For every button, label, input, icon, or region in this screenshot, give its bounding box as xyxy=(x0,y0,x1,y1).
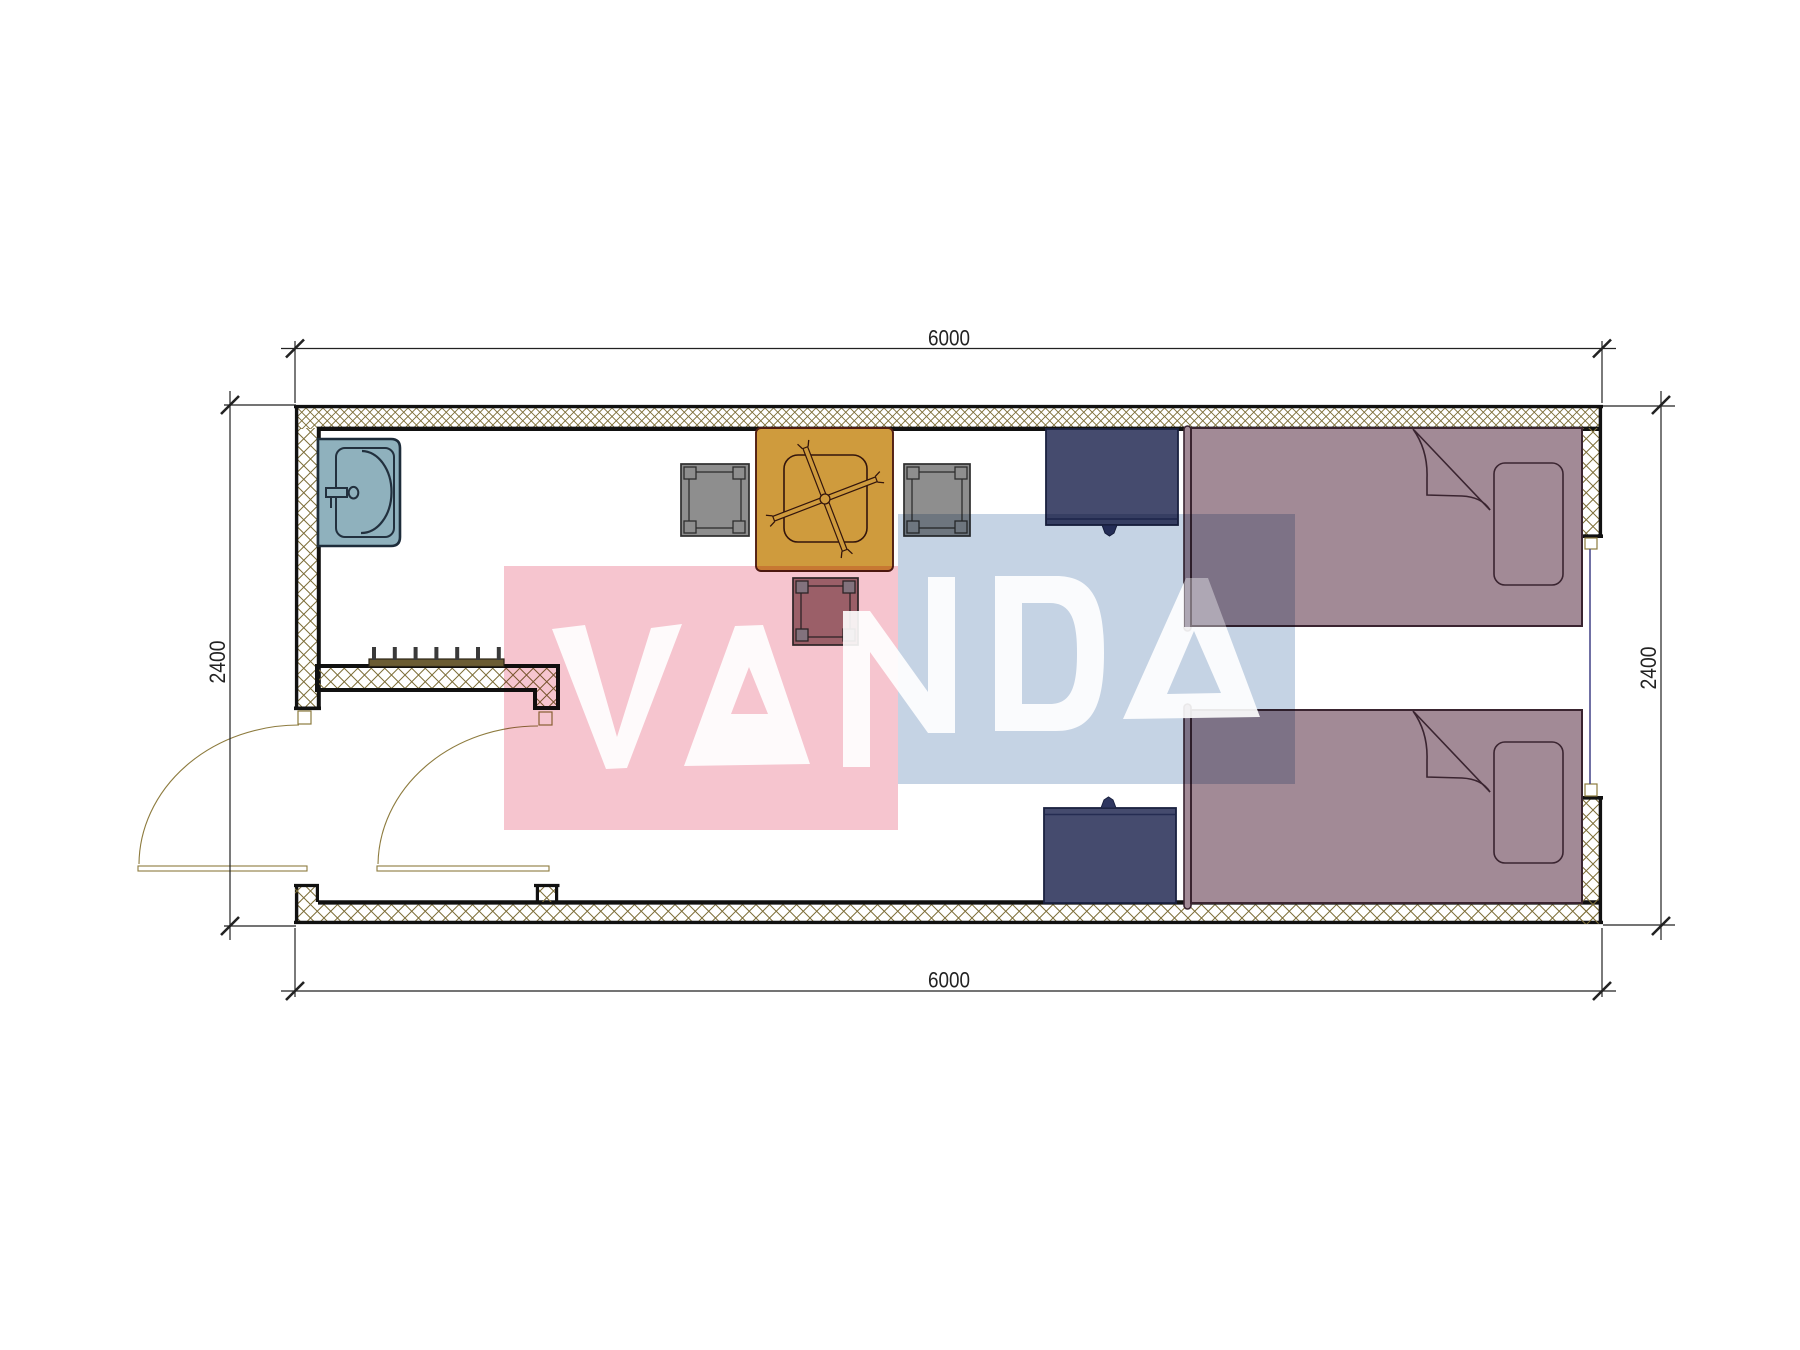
svg-text:2400: 2400 xyxy=(1636,647,1661,690)
svg-text:6000: 6000 xyxy=(928,326,970,351)
svg-text:2400: 2400 xyxy=(205,641,230,684)
svg-text:6000: 6000 xyxy=(928,968,970,993)
